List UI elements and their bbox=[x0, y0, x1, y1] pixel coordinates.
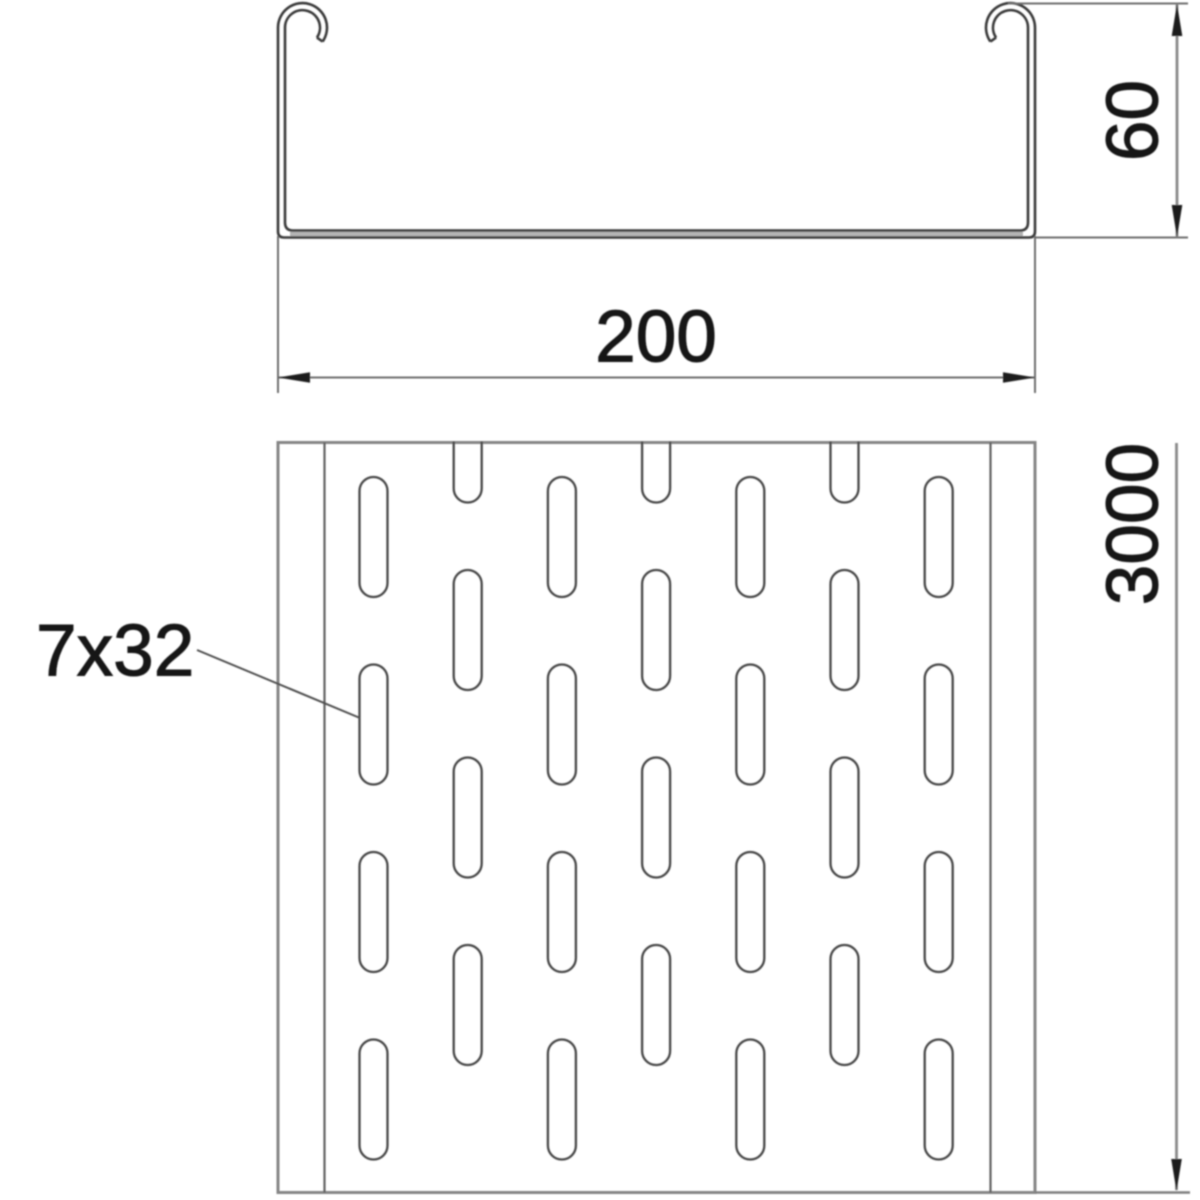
svg-text:3000: 3000 bbox=[1093, 443, 1174, 605]
svg-text:60: 60 bbox=[1093, 80, 1174, 161]
svg-text:200: 200 bbox=[595, 297, 717, 378]
svg-text:7x32: 7x32 bbox=[36, 611, 194, 692]
